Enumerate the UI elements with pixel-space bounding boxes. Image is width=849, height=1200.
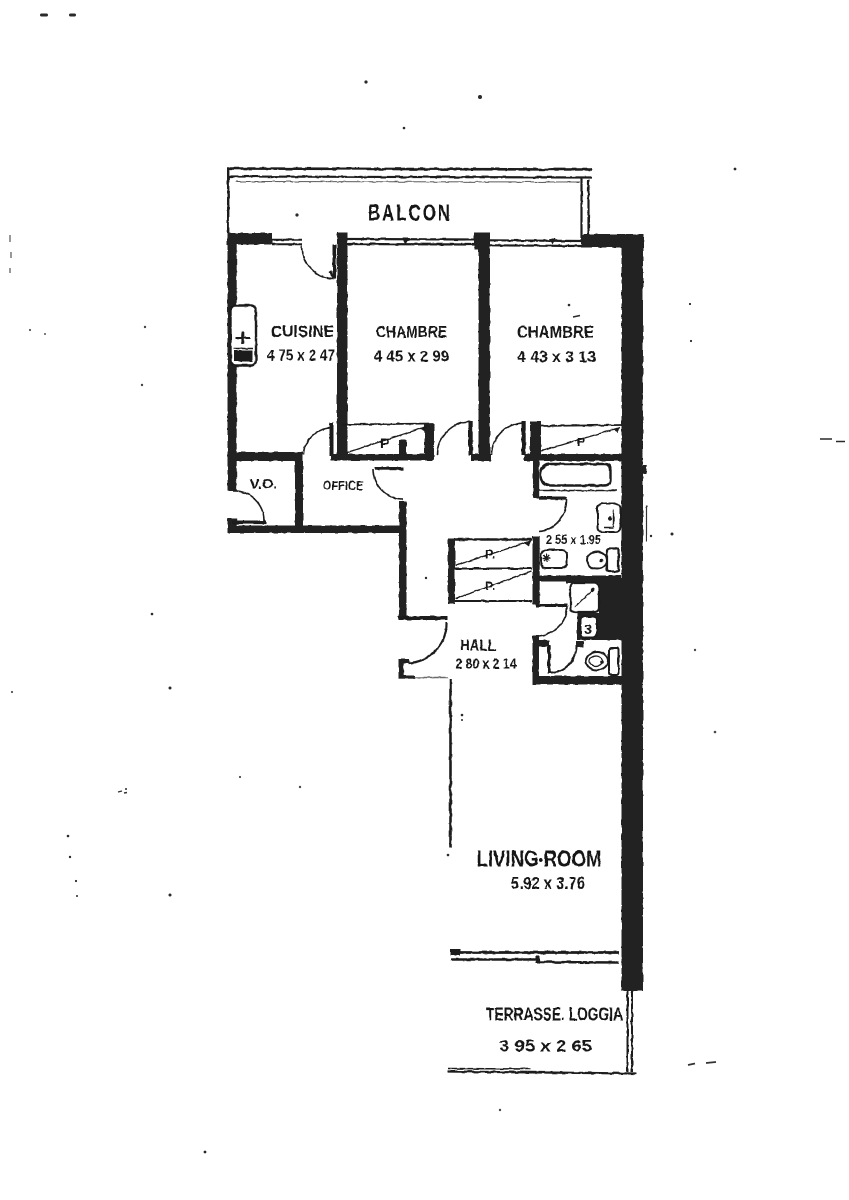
svg-text:4 45 x 2 99: 4 45 x 2 99 [374, 349, 449, 366]
svg-text:P.: P. [485, 580, 495, 594]
svg-text:P: P [380, 435, 389, 451]
svg-text:OFFICE: OFFICE [323, 478, 364, 493]
svg-text:2 80 x 2 14: 2 80 x 2 14 [456, 656, 518, 673]
svg-text:3: 3 [584, 621, 592, 637]
svg-text:5.92 x 3.76: 5.92 x 3.76 [511, 873, 585, 893]
svg-text:4 75 x 2 47: 4 75 x 2 47 [267, 348, 335, 365]
svg-text:P.: P. [485, 548, 495, 562]
svg-text:LIVING ROOM: LIVING ROOM [477, 846, 602, 872]
svg-text:CUISINE: CUISINE [271, 322, 334, 341]
svg-text:BALCON: BALCON [368, 200, 452, 226]
svg-text:P: P [577, 435, 585, 449]
svg-text:TERRASSE. LOGGIA: TERRASSE. LOGGIA [486, 1004, 623, 1025]
svg-text:HALL: HALL [460, 638, 496, 655]
svg-text:V.O.: V.O. [250, 477, 278, 492]
svg-text:3 95 x 2 65: 3 95 x 2 65 [499, 1037, 592, 1056]
svg-text:4 43 x 3 13: 4 43 x 3 13 [517, 349, 596, 366]
svg-text:2 55 x 1.95: 2 55 x 1.95 [546, 532, 601, 547]
svg-text:CHAMBRE: CHAMBRE [517, 323, 594, 342]
svg-text:CHAMBRE: CHAMBRE [376, 323, 447, 342]
